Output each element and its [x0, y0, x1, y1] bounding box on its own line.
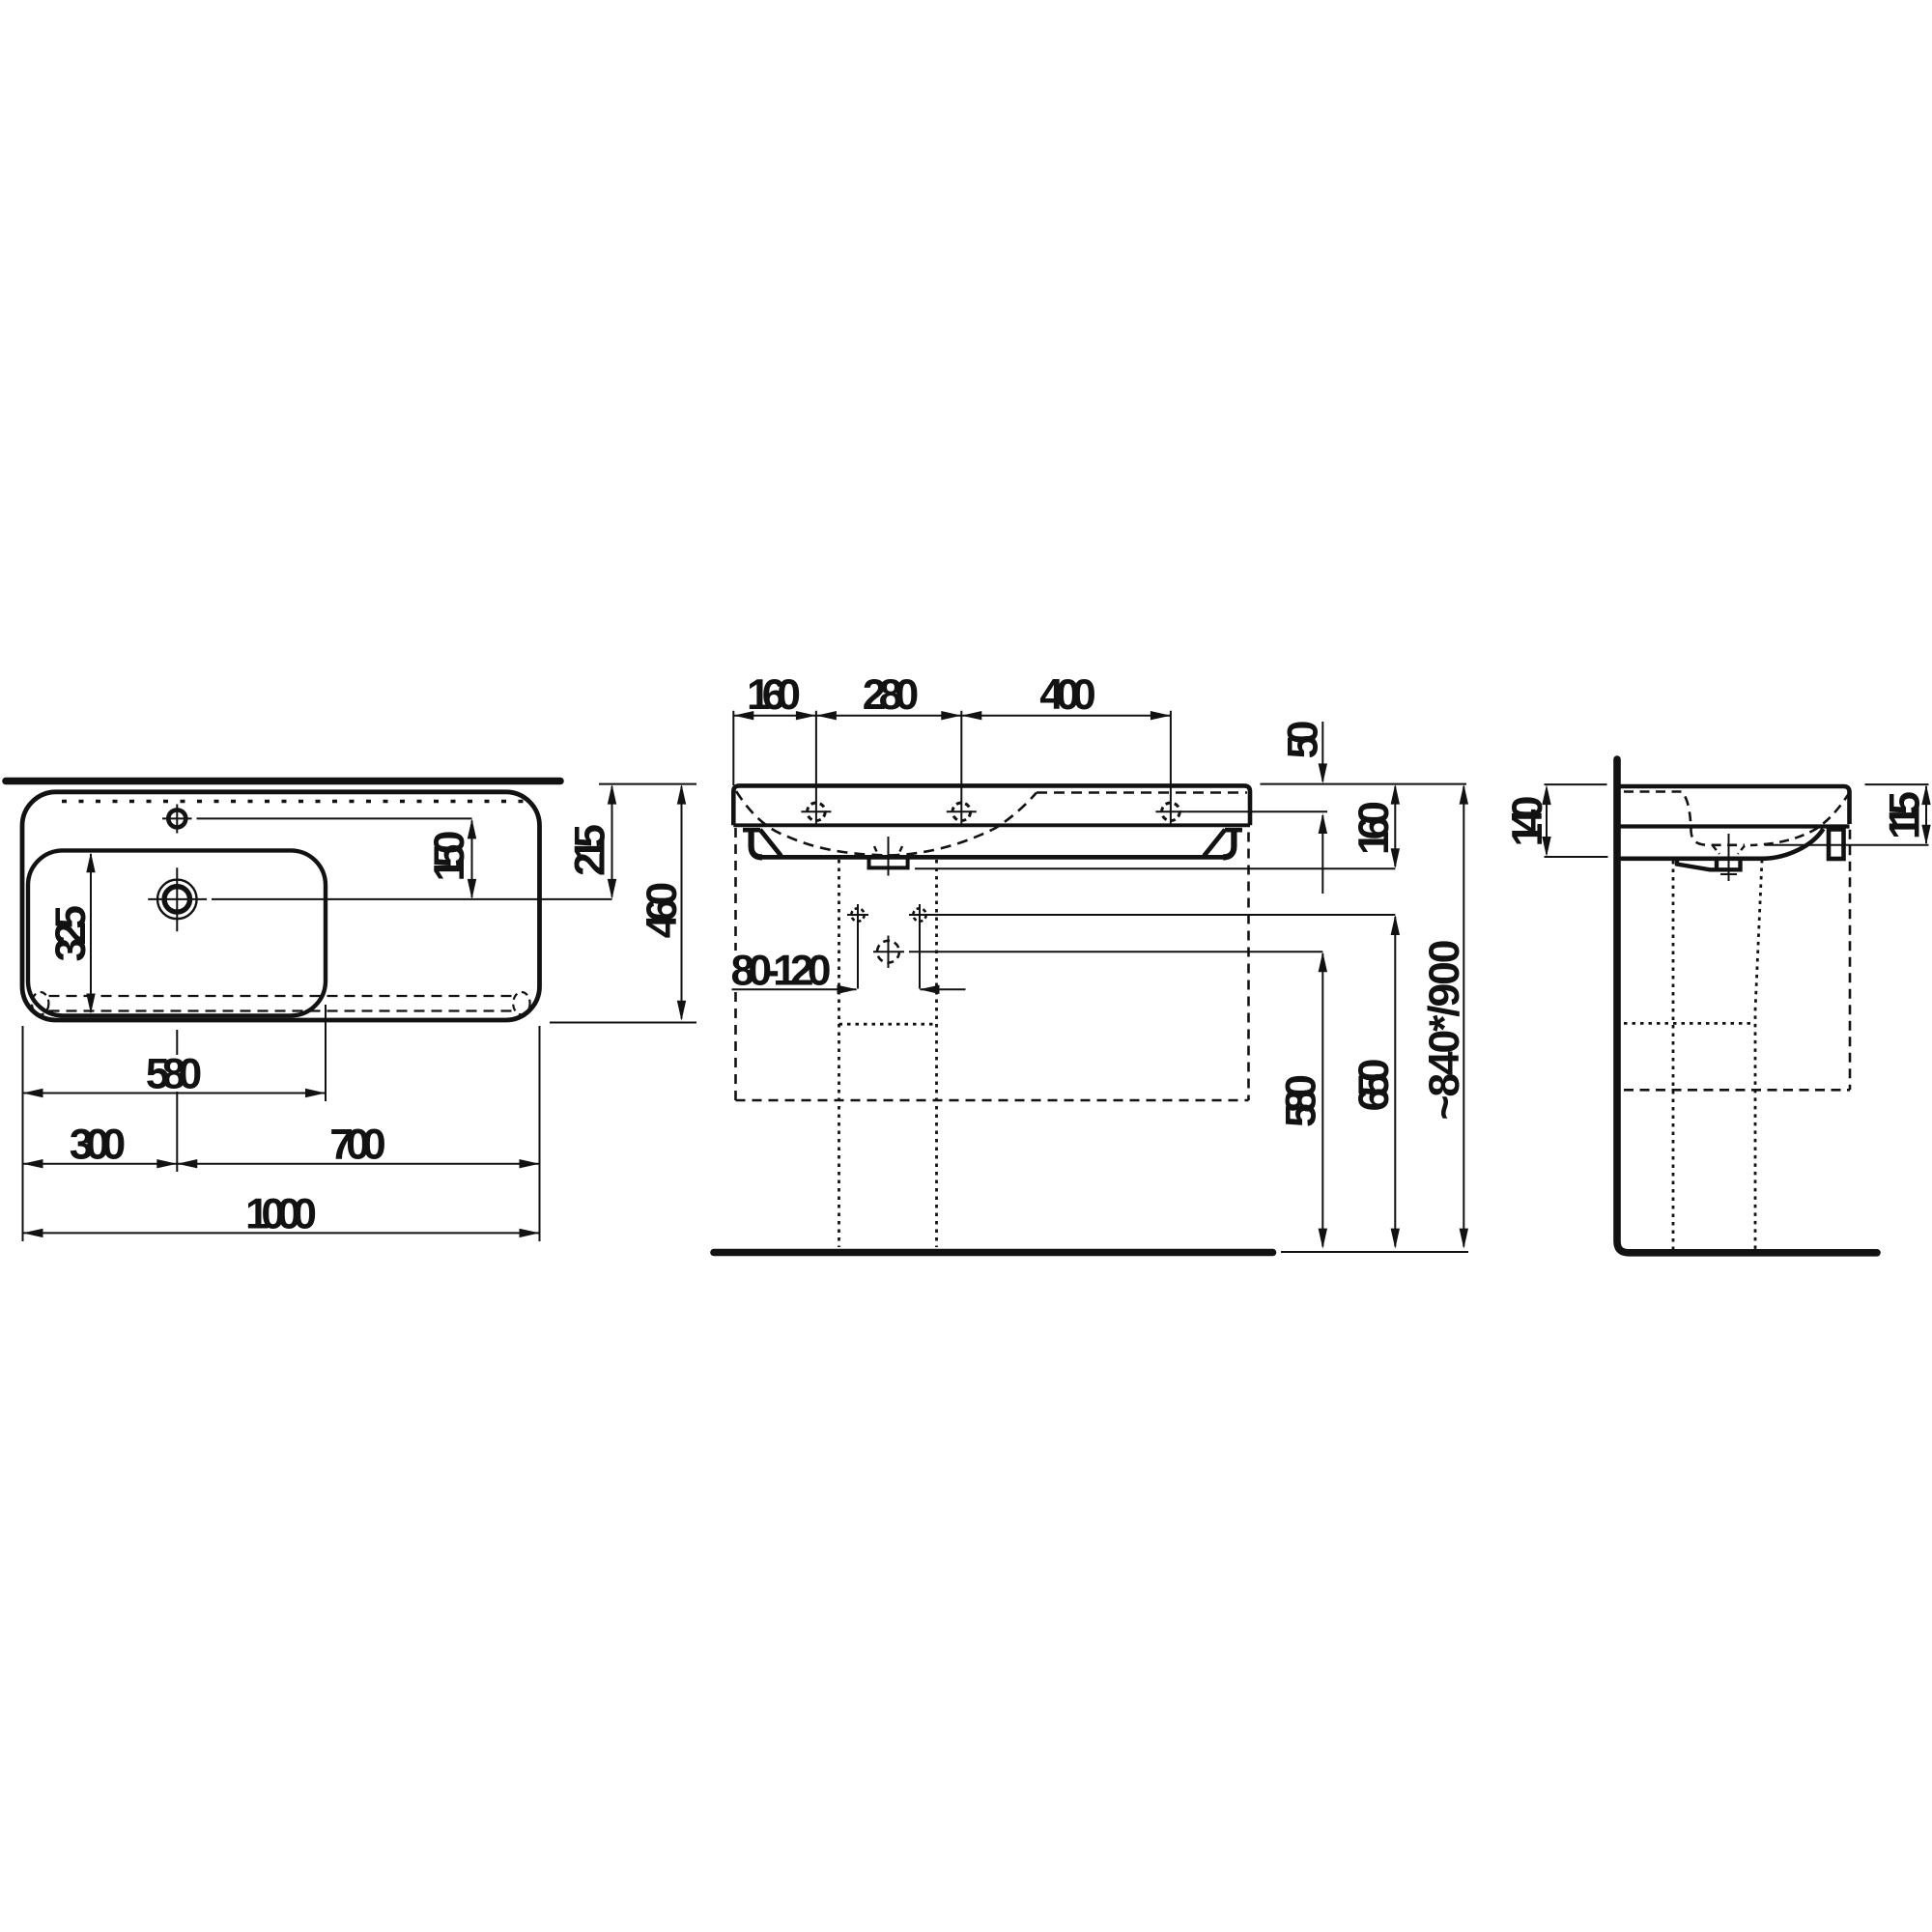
svg-text:580: 580 [1278, 1074, 1325, 1127]
svg-text:160: 160 [747, 671, 801, 719]
svg-text:650: 650 [1350, 1059, 1398, 1112]
svg-text:50: 50 [1280, 721, 1327, 759]
svg-text:140: 140 [1504, 796, 1551, 847]
svg-text:~840*/900: ~840*/900 [1421, 940, 1468, 1121]
svg-text:215: 215 [567, 824, 614, 876]
svg-text:150: 150 [426, 831, 473, 882]
svg-text:460: 460 [639, 882, 686, 939]
svg-text:280: 280 [863, 671, 920, 719]
svg-text:325: 325 [47, 905, 95, 962]
svg-text:160: 160 [1350, 801, 1398, 855]
svg-text:115: 115 [1882, 791, 1929, 839]
svg-text:80-120: 80-120 [731, 948, 832, 995]
svg-text:400: 400 [1039, 671, 1096, 719]
svg-text:580: 580 [146, 1051, 203, 1098]
svg-text:700: 700 [329, 1122, 386, 1169]
svg-text:1000: 1000 [245, 1190, 317, 1237]
svg-text:300: 300 [70, 1122, 127, 1169]
